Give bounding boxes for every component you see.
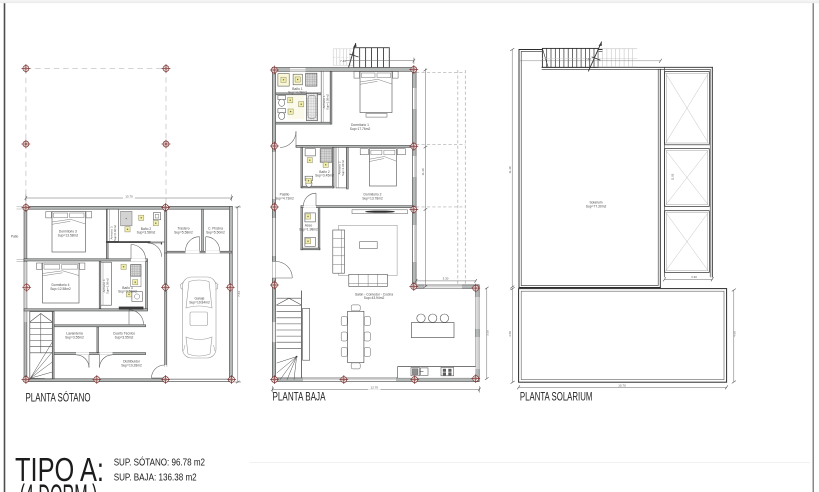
svg-text:3.30: 3.30 [691, 275, 697, 279]
svg-text:Sup=17.76m2: Sup=17.76m2 [350, 127, 371, 131]
svg-text:Sup=1.58m2: Sup=1.58m2 [106, 278, 110, 294]
svg-text:4.60: 4.60 [508, 331, 512, 337]
svg-text:Sup=19.84m2: Sup=19.84m2 [189, 300, 210, 304]
svg-text:Sup=3.58m2: Sup=3.58m2 [137, 231, 156, 235]
svg-text:Sup=1.58m2: Sup=1.58m2 [326, 94, 330, 110]
svg-text:Patio: Patio [11, 235, 18, 239]
svg-text:11.05: 11.05 [671, 173, 675, 180]
svg-text:11.40: 11.40 [508, 166, 512, 173]
svg-text:Sup=1.34m2: Sup=1.34m2 [341, 160, 345, 176]
svg-text:7.40: 7.40 [585, 57, 591, 61]
svg-text:4.60: 4.60 [732, 331, 736, 337]
svg-text:Sup=13.58m2: Sup=13.58m2 [58, 233, 79, 237]
svg-text:10.70: 10.70 [618, 383, 626, 387]
svg-text:Sup=10.28m2: Sup=10.28m2 [121, 363, 142, 367]
svg-text:12.70: 12.70 [371, 386, 379, 390]
svg-text:Sup=5.50m2: Sup=5.50m2 [206, 230, 225, 234]
svg-text:PLANTA SOLARIUM: PLANTA SOLARIUM [520, 392, 593, 404]
svg-text:Sup=0.96m2: Sup=0.96m2 [113, 225, 117, 241]
svg-text:PLANTA BAJA: PLANTA BAJA [273, 392, 326, 404]
svg-text:3.30: 3.30 [443, 277, 449, 281]
svg-text:Sup=4.09m2: Sup=4.09m2 [288, 91, 307, 95]
svg-text:7.40: 7.40 [340, 59, 346, 63]
svg-text:Sup=43.94m2: Sup=43.94m2 [364, 296, 385, 300]
svg-text:Sup=12.58m2: Sup=12.58m2 [50, 287, 71, 291]
svg-text:PLANTA SÓTANO: PLANTA SÓTANO [26, 392, 91, 405]
svg-text:Sup=3.55m2: Sup=3.55m2 [115, 335, 134, 339]
svg-text:13.70: 13.70 [125, 194, 133, 198]
svg-text:Sup=13.78m2: Sup=13.78m2 [362, 196, 383, 200]
svg-text:(4 DORM.): (4 DORM.) [20, 478, 98, 492]
svg-text:SUP. SÓTANO: 96.78 m2: SUP. SÓTANO: 96.78 m2 [114, 455, 205, 468]
svg-text:Sup=77.30m2: Sup=77.30m2 [586, 204, 607, 208]
svg-text:Sup=1.98m2: Sup=1.98m2 [299, 227, 318, 231]
svg-text:11.30: 11.30 [421, 168, 425, 175]
svg-text:Sup=3.58m2: Sup=3.58m2 [118, 290, 137, 294]
svg-text:Sup=3.55m2: Sup=3.55m2 [65, 335, 84, 339]
svg-text:Sup=4.73m2: Sup=4.73m2 [275, 196, 294, 200]
svg-text:SUP. BAJA: 136.38 m2: SUP. BAJA: 136.38 m2 [114, 472, 197, 483]
svg-text:3.50: 3.50 [485, 330, 489, 336]
svg-text:7.64: 7.64 [237, 291, 241, 297]
svg-text:Sup=5.58m2: Sup=5.58m2 [174, 230, 193, 234]
svg-text:Sup=3.45m2: Sup=3.45m2 [315, 174, 334, 178]
